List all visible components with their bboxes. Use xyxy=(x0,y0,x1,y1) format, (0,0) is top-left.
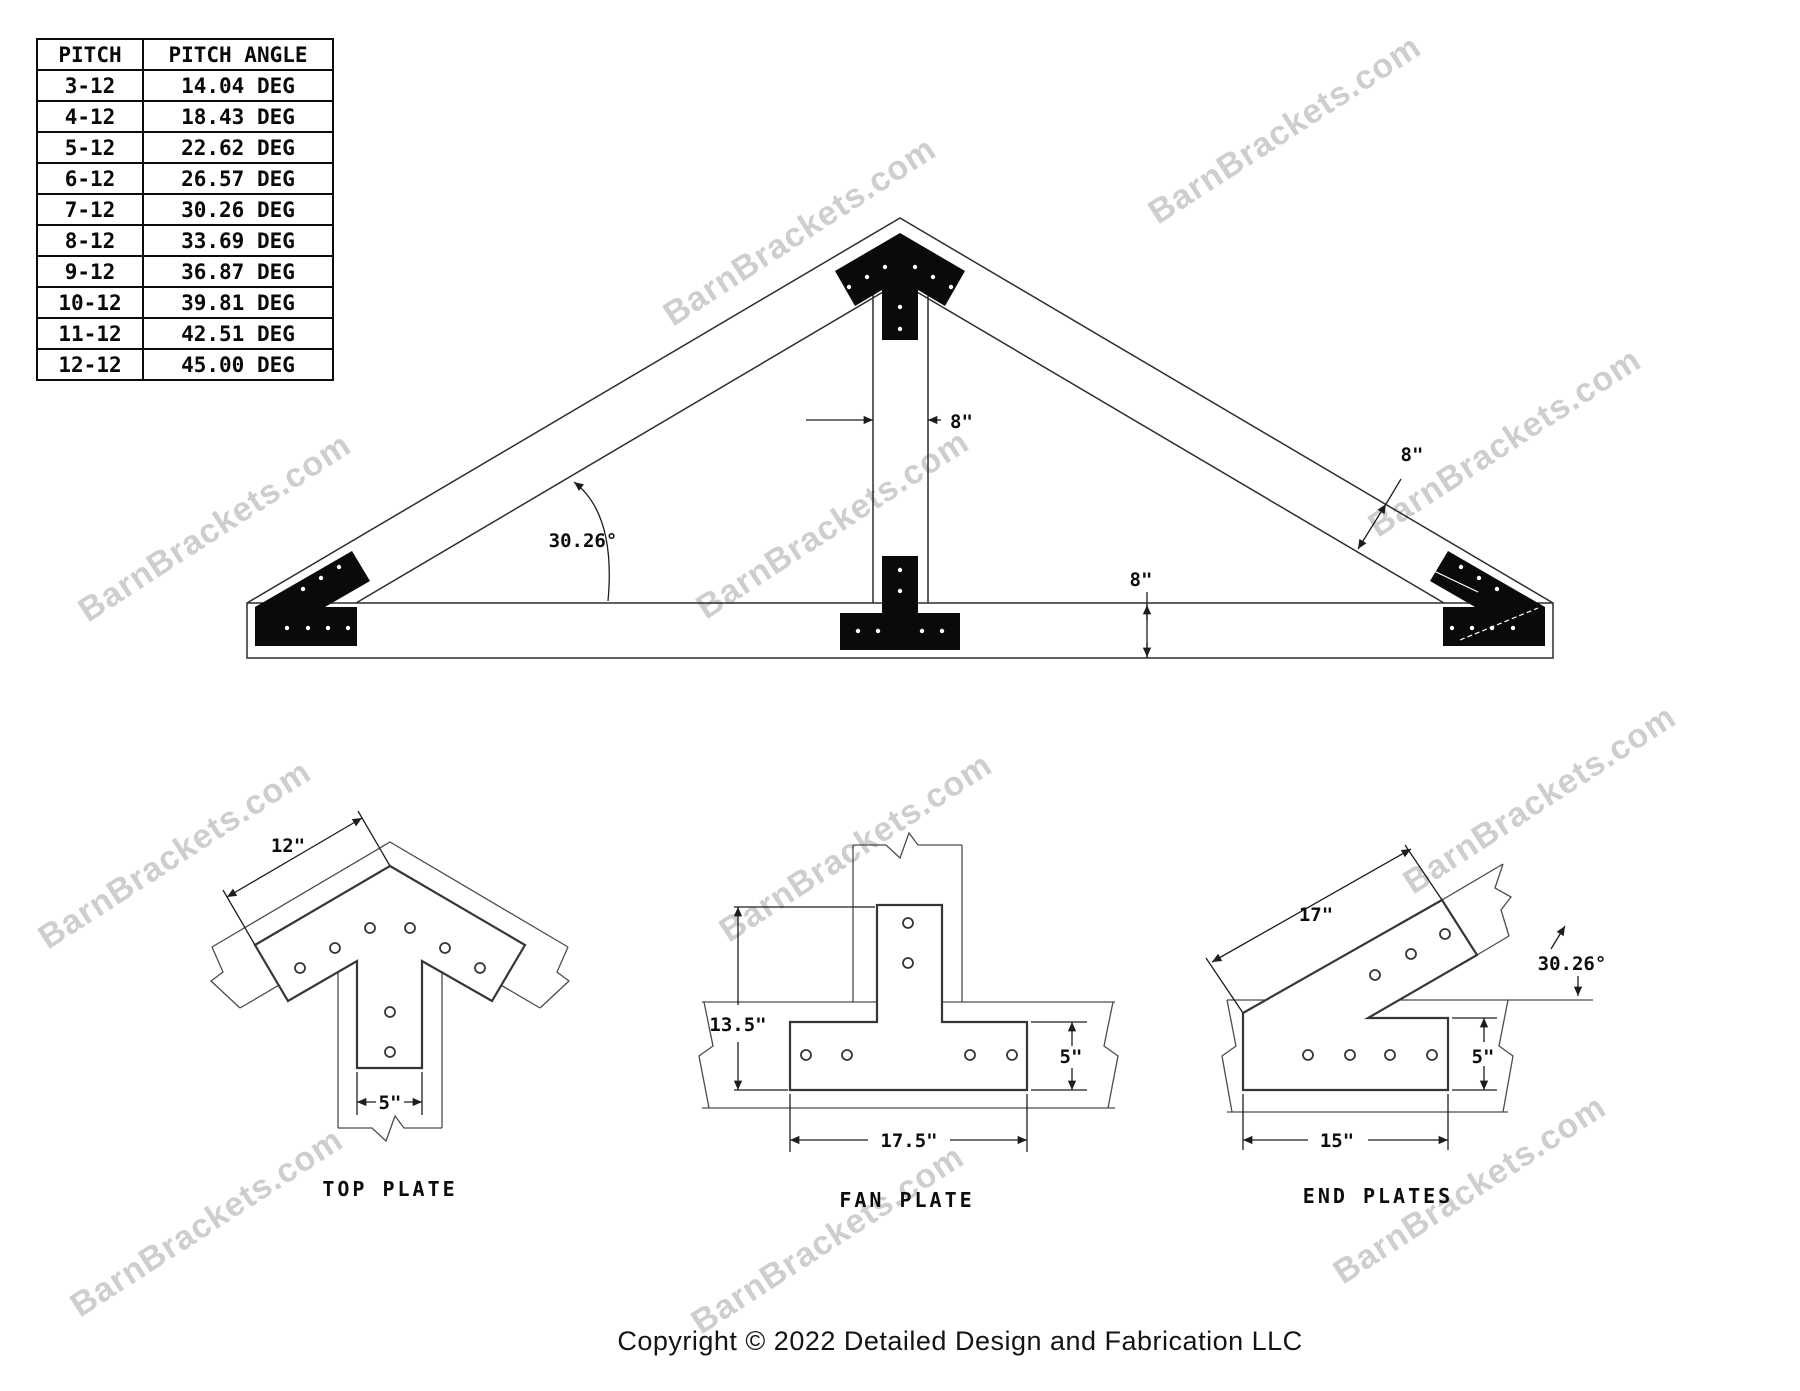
rafter-depth-dim: 8" xyxy=(1358,444,1423,549)
chord-depth-label: 8" xyxy=(1130,569,1153,591)
end-plates-title: END PLATES xyxy=(1303,1184,1453,1208)
end-plates-bar-length-dim: 15" xyxy=(1243,1094,1448,1152)
fan-plate-outline xyxy=(790,905,1027,1090)
top-plate-stem-label: 5" xyxy=(379,1092,402,1114)
truss-diagram: 8" 8" 8" 30.26° xyxy=(247,218,1553,658)
fan-plate-bar-height-label: 5" xyxy=(1060,1046,1083,1068)
top-plate-edge-label: 12" xyxy=(271,835,305,857)
fan-plate-bar-height-dim: 5" xyxy=(1031,1022,1087,1090)
fan-plate-bar-length-label: 17.5" xyxy=(880,1130,937,1152)
fan-plate-title: FAN PLATE xyxy=(839,1188,974,1212)
end-plates-bar-height-dim: 5" xyxy=(1452,1018,1497,1090)
end-plates-outline xyxy=(1243,900,1477,1090)
copyright-notice: Copyright © 2022 Detailed Design and Fab… xyxy=(617,1326,1302,1357)
top-plate-title: TOP PLATE xyxy=(322,1177,457,1201)
peak-bracket xyxy=(835,233,965,340)
pitch-angle-dim: 30.26° xyxy=(549,482,618,601)
rafter-depth-label: 8" xyxy=(1401,444,1424,466)
top-plate-stem-dim: 5" xyxy=(357,1072,422,1115)
king-post-width-label: 8" xyxy=(950,411,973,433)
fan-plate-height-label: 13.5" xyxy=(709,1014,766,1036)
king-post-width-dim: 8" xyxy=(806,411,973,433)
fan-plate-detail: 13.5" 5" 17.5" FAN PLATE xyxy=(699,833,1118,1212)
end-plates-bar-length-label: 15" xyxy=(1320,1130,1354,1152)
end-plates-detail: 17" 30.26° 5" 15" END PLATES xyxy=(1206,845,1606,1208)
chord-depth-dim: 8" xyxy=(1130,569,1153,658)
fan-plate-bar-length-dim: 17.5" xyxy=(790,1094,1027,1152)
end-plates-angle-label: 30.26° xyxy=(1538,953,1607,975)
top-plate-detail: 12" 5" TOP PLATE xyxy=(211,811,569,1201)
pitch-angle-label: 30.26° xyxy=(549,530,618,552)
end-plates-angle-dim: 30.26° xyxy=(1538,926,1607,996)
end-plates-arm-label: 17" xyxy=(1299,904,1333,926)
end-plates-bar-height-label: 5" xyxy=(1472,1046,1495,1068)
drawing-canvas: 8" 8" 8" 30.26° xyxy=(0,0,1800,1391)
